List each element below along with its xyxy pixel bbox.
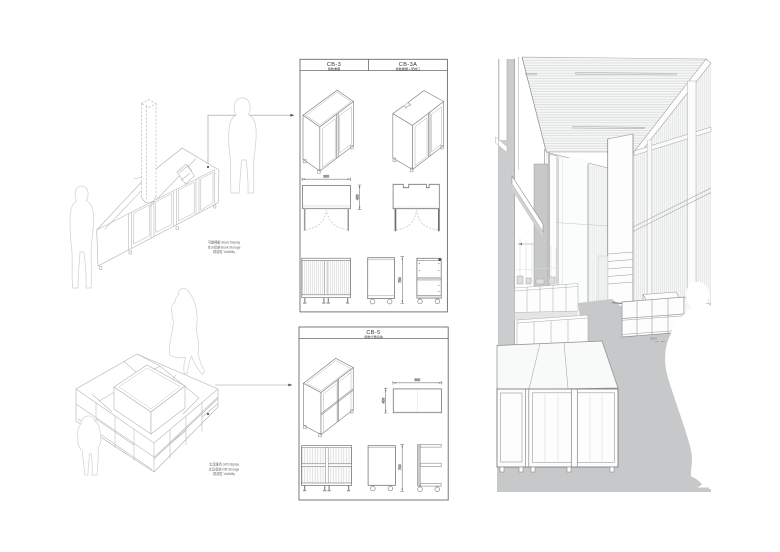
svg-text:移動書棚: 移動書棚 (328, 66, 340, 71)
svg-text:視認性 Visibility: 視認性 Visibility (213, 471, 235, 476)
svg-text:文具収納 Gift Storage: 文具収納 Gift Storage (209, 466, 240, 471)
svg-text:移動什器収納: 移動什器収納 (364, 334, 383, 339)
svg-text:400: 400 (382, 398, 386, 404)
svg-text:450: 450 (355, 194, 359, 200)
svg-text:CB-5: CB-5 (650, 337, 657, 341)
svg-text:300: 300 (323, 175, 329, 179)
svg-text:文具雑貨 Gift Display: 文具雑貨 Gift Display (209, 462, 239, 467)
svg-text:可動棚板 Book Display: 可動棚板 Book Display (208, 240, 241, 245)
svg-text:600: 600 (414, 378, 420, 382)
svg-text:本の収納 Book Storage: 本の収納 Book Storage (208, 244, 241, 249)
svg-text:視認性 Visibility: 視認性 Visibility (213, 249, 235, 254)
svg-text:750: 750 (398, 277, 402, 283)
svg-text:移動書棚＋配線口: 移動書棚＋配線口 (396, 66, 421, 71)
svg-text:700: 700 (398, 464, 402, 470)
